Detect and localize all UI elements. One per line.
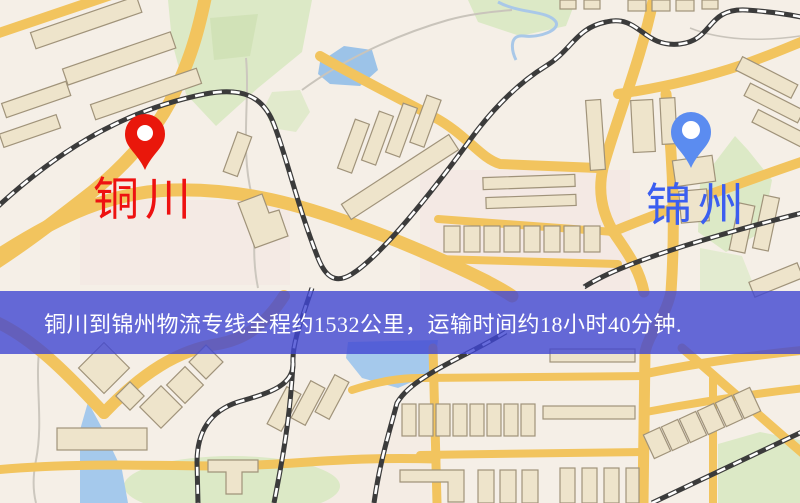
map-canvas[interactable]: 铜川 锦州 铜川到锦州物流专线全程约1532公里，运输时间约18小时40分钟.	[0, 0, 800, 503]
destination-city-label: 锦州	[628, 182, 768, 230]
destination-pin-icon[interactable]	[666, 110, 716, 170]
route-info-banner: 铜川到锦州物流专线全程约1532公里，运输时间约18小时40分钟.	[0, 291, 800, 354]
origin-city-label: 铜川	[75, 176, 215, 224]
destination-pin-hole	[682, 121, 700, 139]
route-info-text: 铜川到锦州物流专线全程约1532公里，运输时间约18小时40分钟.	[44, 307, 682, 339]
origin-pin-hole	[137, 125, 153, 141]
destination-pin-shape	[671, 112, 711, 168]
origin-pin-icon[interactable]	[120, 112, 170, 172]
map-background	[0, 0, 800, 503]
origin-pin-shape	[125, 114, 165, 170]
